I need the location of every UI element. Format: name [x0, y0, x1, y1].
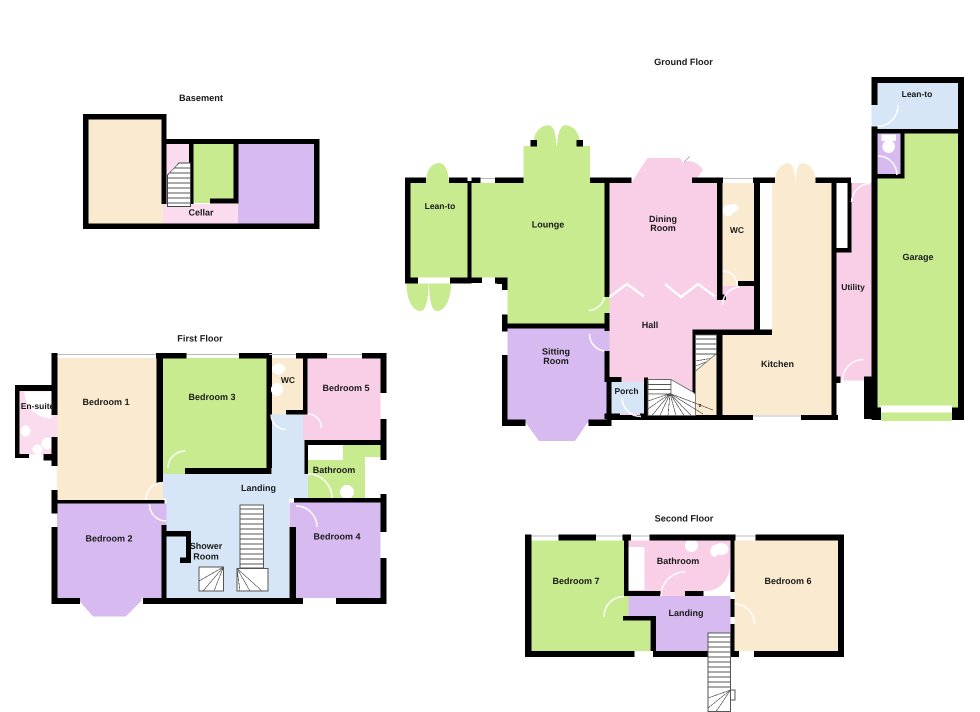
svg-text:Lean-to: Lean-to	[425, 201, 456, 211]
svg-text:Basement: Basement	[179, 93, 223, 103]
svg-text:WC: WC	[730, 225, 744, 235]
svg-text:Bedroom 6: Bedroom 6	[764, 576, 811, 586]
svg-text:WC: WC	[281, 375, 295, 385]
svg-text:Room: Room	[193, 552, 219, 562]
svg-text:Bedroom 7: Bedroom 7	[552, 576, 599, 586]
svg-text:Landing: Landing	[669, 608, 704, 618]
svg-text:Second Floor: Second Floor	[655, 514, 714, 524]
svg-text:Bedroom 4: Bedroom 4	[313, 532, 360, 542]
svg-text:Ground Floor: Ground Floor	[654, 57, 713, 67]
svg-text:Bedroom 1: Bedroom 1	[82, 397, 129, 407]
svg-text:Bedroom 2: Bedroom 2	[85, 534, 132, 544]
svg-text:Cellar: Cellar	[188, 208, 214, 218]
svg-text:Room: Room	[543, 356, 569, 366]
svg-text:Shower: Shower	[190, 541, 223, 551]
svg-text:Kitchen: Kitchen	[761, 359, 794, 369]
svg-text:Garage: Garage	[902, 252, 933, 262]
svg-text:En-suite: En-suite	[21, 401, 55, 411]
svg-text:Room: Room	[650, 223, 676, 233]
svg-text:Bathroom: Bathroom	[313, 465, 356, 475]
svg-text:Landing: Landing	[241, 483, 276, 493]
svg-text:Lean-to: Lean-to	[902, 89, 933, 99]
svg-text:Lounge: Lounge	[532, 220, 565, 230]
svg-text:Bedroom 3: Bedroom 3	[188, 392, 235, 402]
svg-text:Bathroom: Bathroom	[657, 556, 700, 566]
svg-text:Sitting: Sitting	[542, 347, 570, 357]
svg-text:Bedroom 5: Bedroom 5	[322, 383, 369, 393]
svg-text:Porch: Porch	[614, 386, 638, 396]
svg-text:First Floor: First Floor	[177, 334, 223, 344]
svg-text:Hall: Hall	[642, 320, 659, 330]
svg-text:Utility: Utility	[841, 282, 865, 292]
